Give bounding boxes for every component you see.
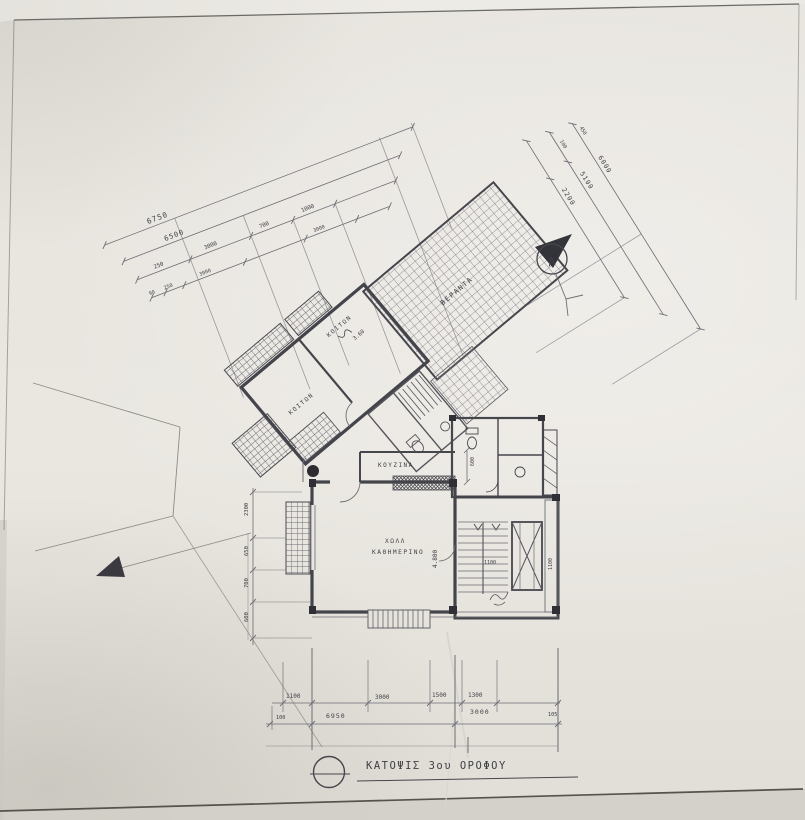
room-label-hall-1: ΧΩΛΛ bbox=[385, 538, 406, 545]
room-dim-bedroom-right: 3.60 bbox=[352, 329, 366, 342]
dim-upper-r3-0: 250 bbox=[153, 261, 165, 270]
dim-kitchen-side: 600 bbox=[470, 457, 476, 466]
dim-upper-subtotal: 6500 bbox=[163, 228, 185, 243]
dim-bottom-r2-0: 100 bbox=[276, 715, 285, 721]
column-dot bbox=[307, 465, 319, 477]
floor-plan-drawing: 6750 6500 250 3000 700 1000 90 250 3000 … bbox=[0, 0, 805, 820]
drawing-title: ΚΑΤΟΨΙΣ 3ου ΟΡΟΦΟΥ bbox=[366, 760, 507, 772]
dim-bottom-r1-0: 1100 bbox=[286, 693, 301, 700]
room-label-bedroom-left: ΚΟΙΤΩΝ bbox=[287, 391, 315, 416]
hall-walls bbox=[312, 482, 455, 612]
dim-stair-left: 1100 bbox=[484, 560, 496, 566]
dim-right-middle: 5100 bbox=[578, 170, 595, 191]
dim-upper-r4-3: 3000 bbox=[313, 224, 326, 234]
room-label-hall-2: ΚΑΘΗΜΕΡΙΝΟ bbox=[372, 549, 424, 556]
title-circle-icon bbox=[314, 757, 345, 788]
dimension-group-bottom: 1100 3000 1500 1300 100 6950 3000 105 bbox=[266, 648, 562, 752]
dim-bottom-r1-1: 3000 bbox=[375, 694, 390, 701]
door-arc bbox=[339, 403, 363, 427]
hall-balcony bbox=[286, 502, 310, 574]
core-top-rooms bbox=[452, 418, 557, 497]
dim-left-0: 2300 bbox=[244, 503, 250, 516]
hall-threshold bbox=[368, 610, 430, 628]
stair-core bbox=[439, 497, 558, 618]
dim-upper-r3-2: 700 bbox=[259, 221, 271, 230]
dim-left-1: 650 bbox=[244, 546, 250, 556]
dim-bottom-r1-3: 1300 bbox=[468, 692, 483, 699]
scanned-floor-plan-page: 6750 6500 250 3000 700 1000 90 250 3000 … bbox=[0, 0, 805, 820]
paper-edges bbox=[0, 0, 805, 820]
dim-bottom-r2-3: 105 bbox=[548, 712, 557, 718]
dim-bottom-r2-1: 6950 bbox=[326, 712, 346, 720]
dim-right-inner: 2200 bbox=[560, 186, 577, 207]
title-block: ΚΑΤΟΨΙΣ 3ου ΟΡΟΦΟΥ bbox=[310, 737, 578, 788]
door-arc bbox=[340, 482, 360, 502]
dim-left-2: 700 bbox=[244, 578, 250, 588]
wall-pochets bbox=[309, 415, 560, 614]
balcony-strip-right bbox=[285, 291, 332, 335]
boundary-arrow-icon bbox=[96, 556, 125, 577]
dim-upper-total: 6750 bbox=[146, 210, 170, 226]
balcony-strip-left bbox=[224, 323, 293, 386]
room-label-kitchen: ΚΟΥΖΙΝΑ bbox=[378, 462, 414, 469]
dim-bottom-r2-2: 3000 bbox=[470, 708, 490, 716]
plant-squiggle bbox=[490, 592, 508, 605]
dim-hall-height: 4.800 bbox=[432, 550, 439, 568]
page-border bbox=[0, 4, 803, 811]
dim-right-outer: 6000 bbox=[596, 154, 613, 175]
room-label-bedroom-right: ΚΟΙΤΩΝ bbox=[325, 314, 353, 339]
dim-left-3: 600 bbox=[244, 612, 250, 622]
dim-upper-r4-2: 3000 bbox=[199, 268, 212, 278]
dim-upper-r4-0: 90 bbox=[148, 289, 156, 297]
dim-bottom-r1-2: 1500 bbox=[432, 692, 447, 699]
dim-stair-right: 1100 bbox=[548, 558, 554, 570]
balcony-small bbox=[232, 414, 296, 477]
